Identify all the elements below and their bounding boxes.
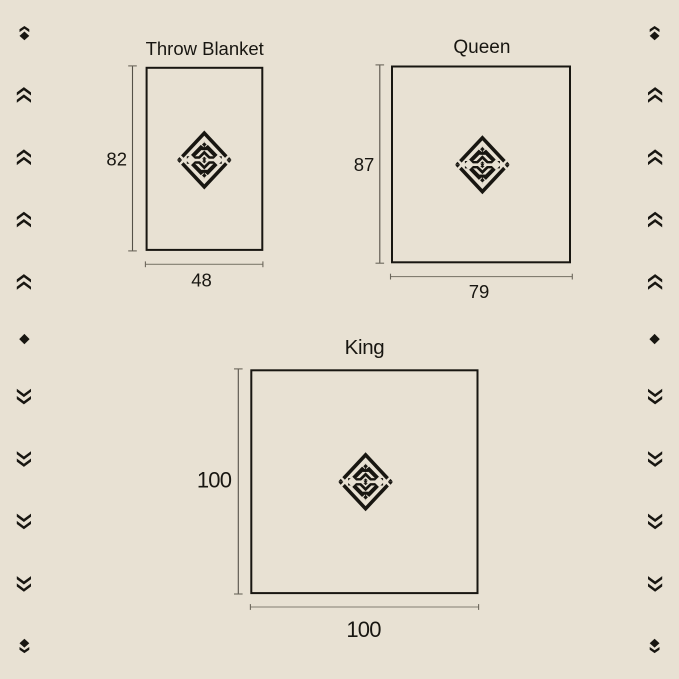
svg-text:King: King: [345, 336, 385, 359]
svg-text:Queen: Queen: [453, 37, 510, 58]
svg-text:87: 87: [354, 154, 375, 175]
svg-text:100: 100: [197, 468, 232, 493]
svg-text:82: 82: [106, 148, 127, 169]
svg-text:Throw Blanket: Throw Blanket: [146, 38, 264, 59]
svg-text:79: 79: [469, 281, 490, 302]
svg-text:100: 100: [346, 617, 381, 642]
svg-text:48: 48: [191, 269, 212, 290]
